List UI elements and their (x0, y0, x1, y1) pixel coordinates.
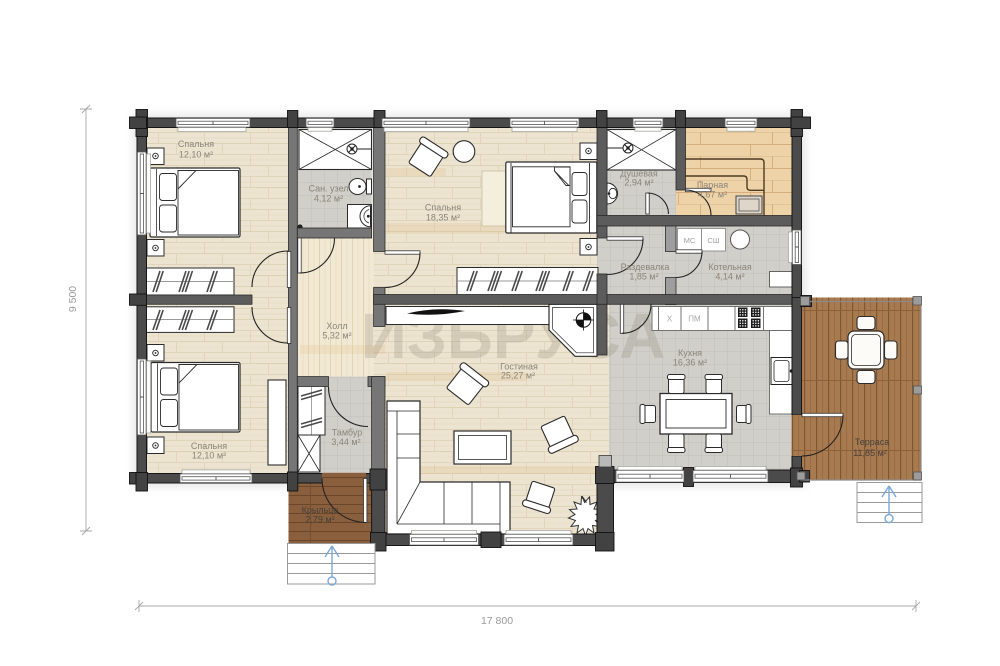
svg-text:Х: Х (667, 315, 673, 324)
svg-text:9 500: 9 500 (67, 286, 79, 312)
svg-text:4,67 м²: 4,67 м² (698, 190, 727, 200)
svg-text:5,32 м²: 5,32 м² (322, 331, 351, 341)
svg-text:1,85 м²: 1,85 м² (629, 272, 658, 282)
svg-text:СШ: СШ (707, 236, 719, 245)
svg-text:12,10 м²: 12,10 м² (192, 451, 226, 461)
svg-text:Терраса: Терраса (855, 437, 890, 447)
svg-text:Спальня: Спальня (425, 203, 461, 213)
svg-text:Тамбур: Тамбур (332, 428, 363, 438)
svg-text:Крыльцо: Крыльцо (302, 505, 339, 515)
svg-text:3,44 м²: 3,44 м² (331, 437, 360, 447)
svg-text:Кухня: Кухня (678, 348, 702, 358)
svg-text:17 800: 17 800 (481, 615, 513, 627)
svg-text:Котельная: Котельная (708, 262, 752, 272)
svg-text:16,36 м²: 16,36 м² (673, 358, 707, 368)
svg-text:Холл: Холл (326, 321, 347, 331)
svg-text:2,94 м²: 2,94 м² (624, 178, 653, 188)
svg-text:4,14 м²: 4,14 м² (715, 272, 744, 282)
svg-text:18,35 м²: 18,35 м² (426, 213, 460, 223)
svg-text:МС: МС (684, 236, 696, 245)
svg-text:2,79 м²: 2,79 м² (305, 515, 334, 525)
svg-text:Сан. узел: Сан. узел (308, 184, 348, 194)
svg-text:12,10 м²: 12,10 м² (179, 150, 213, 160)
svg-text:11,85 м²: 11,85 м² (853, 448, 887, 458)
svg-text:4,12 м²: 4,12 м² (314, 194, 343, 204)
svg-text:Парная: Парная (697, 180, 728, 190)
svg-text:Раздевалка: Раздевалка (621, 262, 670, 272)
svg-text:Спальня: Спальня (178, 139, 214, 149)
svg-text:ПМ: ПМ (688, 315, 701, 324)
svg-text:Спальня: Спальня (191, 441, 227, 451)
svg-text:25,27 м²: 25,27 м² (501, 371, 535, 381)
